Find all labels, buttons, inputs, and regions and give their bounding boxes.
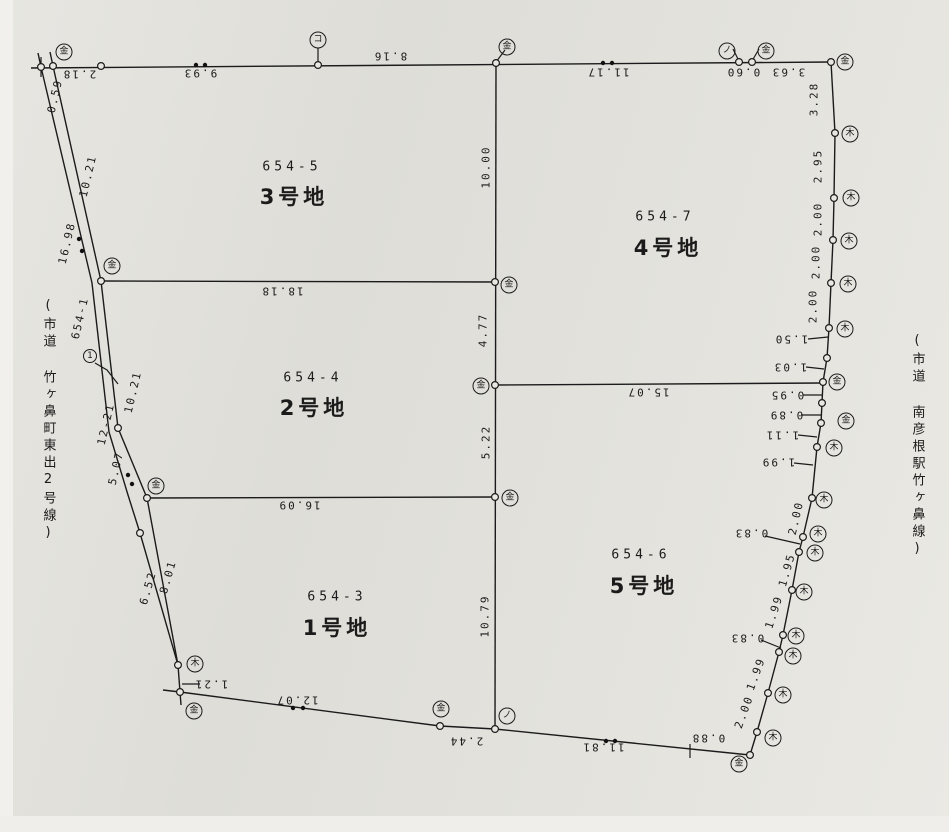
- metal-marker-icon: 金: [473, 378, 490, 395]
- dim-label: 9.93: [183, 67, 218, 80]
- wood-marker-icon: 木: [775, 687, 792, 704]
- wood-marker-icon: 木: [187, 656, 204, 673]
- dim-label: 1.03: [773, 361, 808, 374]
- dim-label: 11.81: [581, 741, 624, 754]
- point-number-marker: 1: [83, 349, 97, 363]
- wood-marker-icon: 木: [807, 545, 824, 562]
- dim-label: 0.88: [691, 732, 726, 745]
- dim-label: 0.83: [734, 527, 769, 540]
- parcel-number: 654-4: [283, 371, 342, 386]
- wood-marker-icon: 木: [816, 492, 833, 509]
- dim-label: 0.83: [730, 632, 765, 645]
- dim-label: 1.11: [765, 429, 800, 442]
- metal-marker-icon: 金: [838, 413, 855, 430]
- dim-label: 16.09: [277, 499, 320, 512]
- metal-marker-icon: 金: [56, 44, 73, 61]
- metal-marker-icon: 金: [829, 374, 846, 391]
- wood-marker-icon: 木: [843, 190, 860, 207]
- dim-label: 5.22: [480, 425, 493, 460]
- dim-label: 2.18: [62, 68, 97, 81]
- boundary-lines: [31, 52, 835, 755]
- parcel-number: 654-3: [307, 590, 366, 605]
- dim-label: 3.28: [808, 82, 821, 117]
- concrete-marker-icon: コ: [310, 32, 327, 49]
- parcel-number: 654-7: [635, 210, 694, 225]
- dim-label: 18.18: [260, 285, 303, 298]
- leader-ticks: [41, 48, 828, 758]
- lot-name: 5号地: [610, 570, 679, 600]
- lot-name: 4号地: [634, 232, 703, 262]
- dim-label: 0.89: [769, 409, 804, 422]
- dim-label: 0.60: [726, 66, 761, 79]
- junction-points: [38, 59, 839, 759]
- wood-marker-icon: 木: [810, 526, 827, 543]
- dim-label: 0.95: [770, 389, 805, 402]
- dim-label: 2.95: [812, 149, 825, 184]
- boundary-drawing: [0, 0, 949, 832]
- dim-label: 3.63: [771, 66, 806, 79]
- dim-label: 11.17: [586, 66, 629, 79]
- dim-label: 2.00: [812, 202, 825, 237]
- wood-marker-icon: 木: [826, 440, 843, 457]
- survey-map: 2.18 9.93 8.16 11.17 0.60 3.63 3.28 2.95…: [0, 0, 949, 832]
- wood-marker-icon: 木: [796, 584, 813, 601]
- dim-label: 8.16: [373, 50, 408, 63]
- dim-label: 12.07: [275, 694, 318, 707]
- wood-marker-icon: 木: [837, 321, 854, 338]
- wood-marker-icon: 木: [788, 628, 805, 645]
- metal-marker-icon: 金: [104, 258, 121, 275]
- wood-marker-icon: 木: [785, 648, 802, 665]
- metal-marker-icon: 金: [502, 490, 519, 507]
- metal-marker-icon: 金: [837, 54, 854, 71]
- road-name-right: (市道 南彦根駅竹ヶ鼻線): [908, 333, 927, 560]
- dim-label: 15.07: [626, 386, 669, 399]
- metal-marker-icon: 金: [499, 39, 516, 56]
- lot-name: 2号地: [280, 392, 349, 422]
- slash-marker-icon: ノ: [719, 43, 736, 60]
- road-name-left: (市道 竹ヶ鼻町東出2号線): [39, 298, 58, 544]
- lot-name: 1号地: [303, 612, 372, 642]
- lot-name: 3号地: [260, 181, 329, 211]
- wood-marker-icon: 木: [842, 126, 859, 143]
- metal-marker-icon: 金: [148, 478, 165, 495]
- dim-label: 1.21: [194, 678, 229, 691]
- dim-label: 2.00: [807, 289, 820, 324]
- wood-marker-icon: 木: [840, 276, 857, 293]
- wood-marker-icon: 木: [765, 730, 782, 747]
- parcel-number: 654-6: [611, 548, 670, 563]
- metal-marker-icon: 金: [501, 277, 518, 294]
- parcel-number: 654-5: [262, 160, 321, 175]
- dim-label: 4.77: [477, 313, 490, 348]
- metal-marker-icon: 金: [731, 756, 748, 773]
- dim-label: 1.50: [774, 333, 809, 346]
- dim-label: 2.44: [449, 735, 484, 748]
- metal-marker-icon: 金: [758, 43, 775, 60]
- wood-marker-icon: 木: [841, 233, 858, 250]
- dim-label: 10.79: [479, 594, 492, 637]
- slash-marker-icon: ノ: [499, 708, 516, 725]
- dim-label: 10.00: [480, 145, 493, 188]
- metal-marker-icon: 金: [433, 701, 450, 718]
- dim-label: 2.00: [810, 245, 823, 280]
- dim-label: 1.99: [761, 456, 796, 469]
- metal-marker-icon: 金: [186, 703, 203, 720]
